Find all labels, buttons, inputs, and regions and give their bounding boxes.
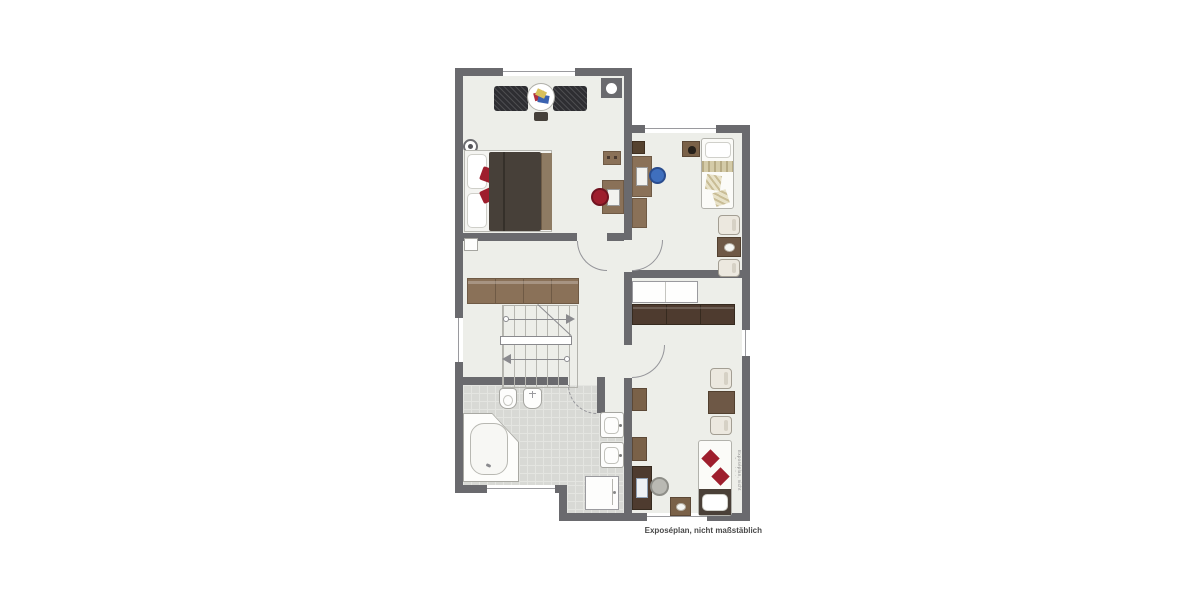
nightstand-item [688,146,696,154]
wall-top-right-b [716,125,750,133]
lounge-chair [718,215,740,235]
stair-arrow-up-head [566,314,575,324]
bidet [499,388,517,409]
side-table-square [717,237,741,257]
closet-divider [665,282,666,302]
chair-backrest [724,372,728,385]
sink [600,412,624,438]
staircase-rail [500,336,572,345]
master-nightstand [464,238,478,251]
shelf-box [632,141,645,154]
table-dish [724,243,735,252]
lounge-chair [718,259,740,277]
chair-backrest [732,263,736,273]
round-side-table [527,83,555,111]
wall-bottom-a [559,513,647,521]
stair-arrow-down-head [502,354,511,364]
cabinet-knob [607,156,610,159]
stair-arrow-up-start [503,316,509,322]
pillow [705,142,731,158]
bottomright-nightstand [670,497,691,516]
single-bed-topright [701,138,734,209]
window-hall-left [455,318,463,362]
sideboard [632,304,735,325]
watermark-vertical-text: Exposéplan, nicht maßstäblich [735,450,742,514]
blanket-patch [705,174,722,191]
sink [600,442,624,468]
wall-cabinet-master [603,151,621,165]
window-pane-line [645,128,716,129]
bed-bench [541,153,552,230]
window-pane-line [745,330,746,356]
wall-right-a [742,125,750,330]
master-bed [464,150,552,232]
window-pane-line [503,71,575,72]
blanket-patch [712,189,730,207]
toilet-tap-h [529,393,536,394]
accent-pillow-red [701,449,719,467]
window-pane-line [647,516,707,517]
toilet [523,388,542,409]
wall-bath-stub [597,377,605,413]
wall-master-south-b [607,233,624,241]
stair-arrow-up-line [506,319,568,320]
laptop-icon [636,478,648,498]
master-wardrobe [467,278,579,304]
wall-shared-a [624,68,632,240]
door-gap-bottom-right [624,345,632,378]
chimney-flue-icon [606,83,617,94]
sink-drain [619,424,622,427]
stair-arrow-down-start [564,356,570,362]
armchair-left [494,86,528,111]
chair-backrest [724,420,728,431]
duvet-fold [503,152,505,231]
single-bed-bottomright [698,440,732,516]
bidet-basin [503,395,513,406]
lounge-chair [710,368,732,389]
shower [585,476,619,510]
laptop-icon [636,167,648,186]
footstool [534,112,548,121]
accent-pillow-red [711,467,729,485]
low-cabinet [632,198,647,228]
wall-shared-b [624,272,632,345]
hall-nook-floor [605,377,624,413]
wall-right-b [742,356,750,521]
floor-plan: Exposéplan, nicht maßstäblich Exposéplan… [0,0,1200,600]
window-topright-room [645,125,716,133]
wardrobe-highlight [468,281,578,284]
door-gap-master [577,233,607,241]
sideboard-highlight [633,307,734,309]
wall-top-right-a [632,125,645,133]
shower-handle [613,491,616,494]
stair-arrow-down-line [510,359,566,360]
sink-basin [604,447,619,464]
topright-nightstand [682,141,700,157]
nightstand-dish [676,503,686,511]
lounge-chair [710,416,732,435]
desk-chair-red [591,188,609,206]
plan-caption: Exposéplan, nicht maßstäblich [600,526,762,538]
window-master-top [503,68,575,76]
chair-backrest [732,219,736,231]
wall-cabinet [632,437,647,461]
window-right-wall [742,330,750,356]
bed-foot-section [699,489,731,515]
bottomright-desk [632,466,652,510]
armchair-right [553,86,587,111]
sink-drain [619,454,622,457]
sink-basin [604,417,619,434]
wall-left-a [455,68,463,318]
door-gap-top-right [624,240,632,272]
cabinet-knob [614,156,617,159]
window-pane-line [487,488,555,489]
desk-chair-blue [649,167,666,184]
blanket-pattern-strip [702,161,733,172]
window-bathroom [487,485,555,493]
pillow [702,494,728,511]
desk-chair-gray [650,477,669,496]
wall-cabinet [632,388,647,411]
open-closet [632,281,698,303]
window-pane-line [458,318,459,362]
wall-shared-c [624,378,632,521]
duvet [489,152,541,231]
wall-bottom-left-a [455,485,487,493]
chimney-block [601,78,622,98]
wall-lamp-center [468,144,473,149]
side-table-square [708,391,735,414]
